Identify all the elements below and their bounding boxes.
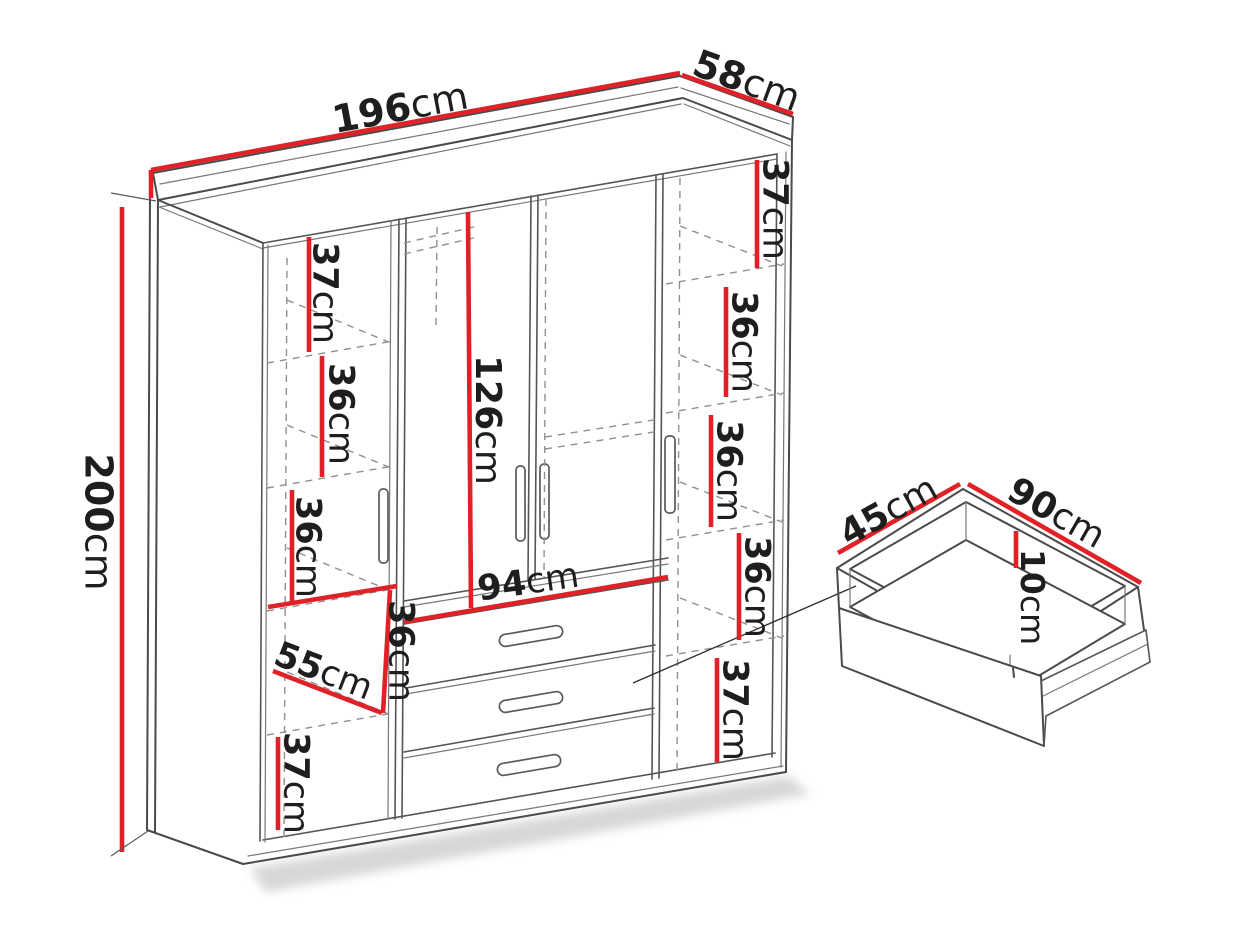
dim-label-drawer-height: 10cm bbox=[1013, 549, 1052, 645]
drawer-3-handle bbox=[496, 754, 561, 777]
middle-left-door-handle bbox=[516, 466, 525, 541]
wardrobe-dimension-diagram: 196cm 58cm 200cm 37cm 36cm 36cm 55cm 36c… bbox=[0, 0, 1236, 927]
dim-label-right-0: 37cm bbox=[754, 158, 794, 260]
dim-label-right-3: 36cm bbox=[736, 536, 776, 638]
base-front-edge bbox=[243, 772, 786, 864]
dim-label-right-1: 36cm bbox=[723, 291, 763, 393]
right-door-handle bbox=[665, 436, 675, 513]
dim-label-right-4: 37cm bbox=[714, 659, 754, 761]
drawer-2-handle bbox=[498, 691, 563, 714]
middle-door-gap bbox=[528, 195, 538, 580]
floor-shadow bbox=[250, 776, 810, 892]
dim-label-left-1: 36cm bbox=[320, 363, 360, 465]
dim-line-left-shelf bbox=[268, 586, 397, 607]
dim-label-left-3: 55cm bbox=[269, 635, 379, 709]
dim-label-drawer-width: 94cm bbox=[475, 556, 582, 610]
dim-label-left-5: 37cm bbox=[275, 732, 315, 834]
dim-label-left-0: 37cm bbox=[304, 242, 344, 344]
dim-label-right-2: 36cm bbox=[708, 420, 748, 522]
dim-label-left-4: 36cm bbox=[380, 600, 420, 702]
drawer-1-handle bbox=[498, 625, 563, 648]
partition-right bbox=[652, 174, 663, 779]
wardrobe-top-panel bbox=[153, 76, 793, 200]
door-handles bbox=[379, 436, 675, 563]
left-panel-outer-edge bbox=[147, 196, 150, 830]
drawer-handles bbox=[496, 625, 563, 777]
left-door-handle bbox=[379, 489, 388, 563]
partition-left bbox=[395, 218, 406, 819]
dim-label-height: 200cm bbox=[76, 453, 120, 590]
dim-label-left-2: 36cm bbox=[287, 496, 327, 598]
interior-ceiling-edge bbox=[263, 154, 777, 243]
dim-label-hanging-height: 126cm bbox=[467, 355, 508, 485]
diagram-canvas: 196cm 58cm 200cm 37cm 36cm 36cm 55cm 36c… bbox=[0, 0, 1236, 927]
